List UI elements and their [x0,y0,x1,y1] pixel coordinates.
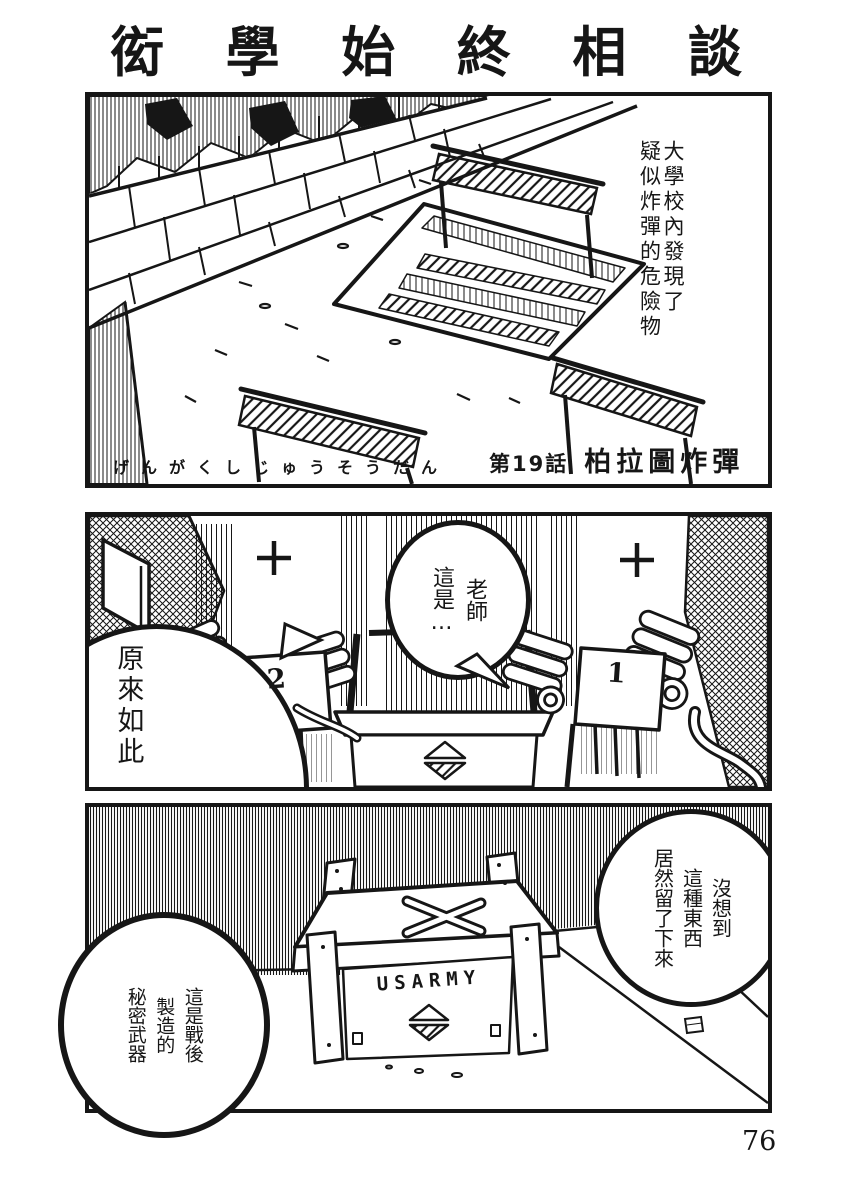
panel-2: 原來如此 老師 這是… 2 1 [85,512,772,791]
manga-page: 衒學始終相談 [0,0,844,1200]
speech-text-right: 沒想到 這種東西 居然留了下來 [648,848,735,968]
speech-text-teacher: 老師 這是… [425,566,491,635]
speech-bubble-teacher: 老師 這是… [385,520,531,680]
speech-text-left: 這是戰後 製造的 秘密武器 [121,987,207,1063]
debris [386,1066,462,1078]
chair-number-1: 1 [606,657,627,689]
page-title: 衒學始終相談 [110,20,742,84]
excavation-pit [334,204,644,359]
chair-number-2: 2 [266,663,287,695]
narration-text: 大學校內發現了 疑似炸彈的危險物 [637,140,684,340]
right-stone-wall [685,516,768,787]
speech-text-naruhodo: 原來如此 [111,644,143,768]
series-title-furigana: げんがくしじゅうそうだん [113,454,449,478]
floor-object [685,1017,703,1033]
chapter-title: 柏拉圖炸彈 [584,440,744,479]
chapter-number: 第19話 [489,448,568,478]
page-number: 76 [742,1126,776,1157]
speech-bubble-left: 這是戰後 製造的 秘密武器 [58,912,270,1138]
panel-1: 大學校內發現了 疑似炸彈的危險物 げんがくしじゅうそうだん 第19話 柏拉圖炸彈 [85,92,772,488]
chapter-caption: 第19話 柏拉圖炸彈 [489,440,744,479]
